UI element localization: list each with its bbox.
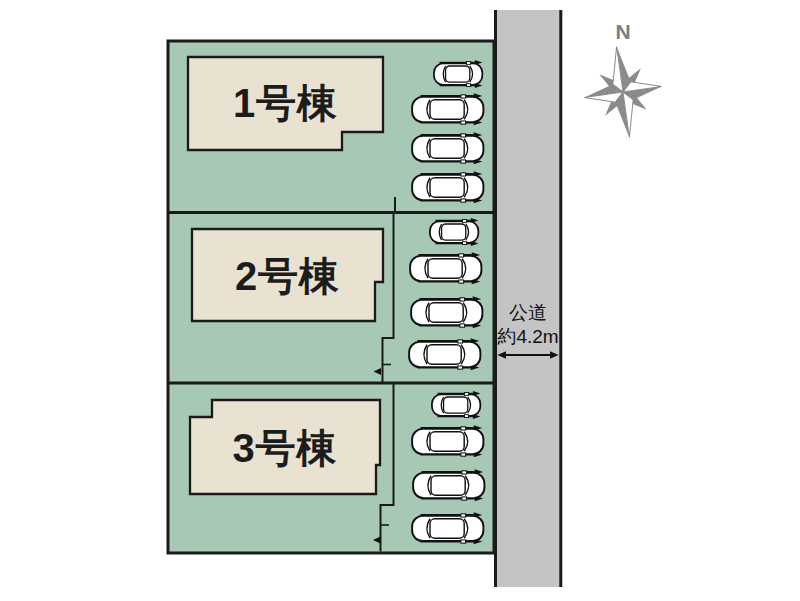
site-plan: 1号棟 2号棟 3号棟 公道 約4.2m N [0, 0, 800, 601]
car-icon [430, 218, 478, 246]
car-icon [412, 512, 483, 544]
car-icon [412, 132, 483, 164]
building-1-label: 1号棟 [188, 80, 383, 126]
car-icon [413, 469, 484, 501]
road-label: 公道 約4.2m [493, 301, 563, 349]
car-icon [432, 391, 480, 419]
car-icon [409, 338, 480, 370]
site-plan-drawing [0, 0, 800, 601]
car-icon [412, 425, 483, 457]
road-label-line2: 約4.2m [493, 325, 563, 349]
building-2-label: 2号棟 [192, 253, 383, 299]
car-icon [412, 93, 483, 125]
compass-rose-icon [578, 41, 668, 143]
road-label-line1: 公道 [493, 301, 563, 325]
car-icon [412, 171, 483, 203]
car-icon [434, 60, 482, 88]
compass-north-label: N [605, 20, 641, 44]
car-icon [410, 252, 481, 284]
building-3-label: 3号棟 [190, 425, 380, 471]
road [494, 10, 562, 587]
car-icon [411, 296, 482, 328]
